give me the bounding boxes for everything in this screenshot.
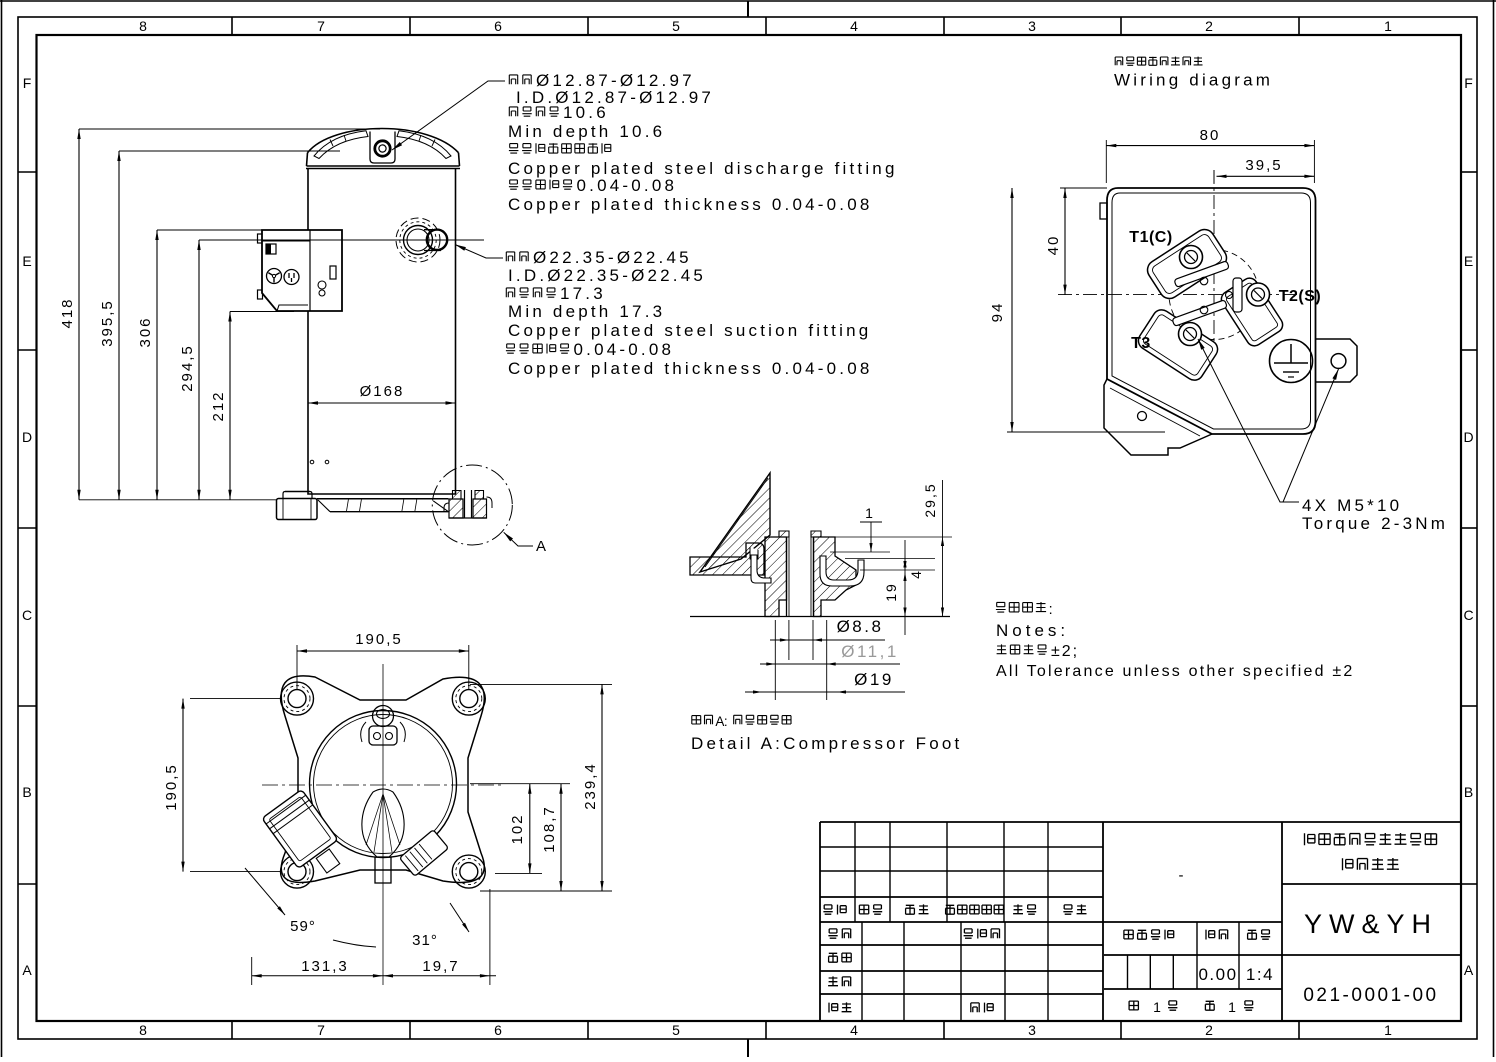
svg-text:4: 4	[850, 1022, 858, 1038]
svg-text:I.D.Ø22.35-Ø22.45: I.D.Ø22.35-Ø22.45	[508, 266, 706, 285]
svg-text:F: F	[1464, 75, 1473, 91]
svg-text:239,4: 239,4	[582, 762, 599, 810]
svg-text:C: C	[22, 607, 32, 623]
svg-text:C: C	[1463, 607, 1473, 623]
svg-text:5: 5	[672, 18, 680, 34]
svg-text:Ø22.35-Ø22.45: Ø22.35-Ø22.45	[533, 248, 692, 267]
svg-text:YW&YH: YW&YH	[1304, 909, 1438, 939]
svg-text:B: B	[1464, 784, 1473, 800]
svg-text:3: 3	[1028, 18, 1036, 34]
svg-text:B: B	[22, 784, 31, 800]
svg-text:17.3: 17.3	[560, 284, 606, 303]
svg-text:Ø8.8: Ø8.8	[837, 617, 884, 636]
svg-text:I.D.Ø12.87-Ø12.97: I.D.Ø12.87-Ø12.97	[516, 88, 714, 107]
svg-text:1: 1	[1228, 999, 1238, 1015]
svg-text:A: A	[536, 538, 546, 555]
svg-text:Ø19: Ø19	[854, 670, 894, 689]
svg-text:1: 1	[1384, 1022, 1392, 1038]
svg-text:Ø168: Ø168	[360, 383, 405, 400]
svg-text:A: A	[22, 962, 32, 978]
svg-text:102: 102	[509, 813, 526, 844]
svg-text:T3: T3	[1131, 335, 1151, 352]
svg-text::: :	[724, 714, 728, 729]
svg-text:190,5: 190,5	[355, 631, 403, 648]
svg-text:212: 212	[210, 390, 227, 421]
svg-text:39,5: 39,5	[1245, 157, 1282, 174]
svg-text:1: 1	[865, 505, 875, 521]
svg-text:1:4: 1:4	[1246, 965, 1274, 984]
svg-text:-: -	[1179, 867, 1186, 884]
svg-text:1: 1	[1384, 18, 1392, 34]
svg-text:6: 6	[494, 1022, 502, 1038]
svg-text:306: 306	[137, 316, 154, 347]
svg-text:F: F	[23, 75, 32, 91]
svg-text:Wiring diagram: Wiring diagram	[1114, 71, 1273, 90]
svg-text:T2(S): T2(S)	[1279, 288, 1322, 305]
svg-text:4X M5*10: 4X M5*10	[1302, 496, 1402, 515]
svg-text:E: E	[1464, 253, 1473, 269]
svg-text:108,7: 108,7	[541, 805, 558, 853]
svg-text:2: 2	[1205, 1022, 1213, 1038]
svg-text:0.04-0.08: 0.04-0.08	[574, 340, 675, 359]
svg-text:59°: 59°	[290, 918, 316, 935]
svg-text:1: 1	[1153, 999, 1163, 1015]
svg-text:4: 4	[908, 569, 924, 579]
svg-text:Detail A:Compressor Foot: Detail A:Compressor Foot	[691, 734, 962, 753]
svg-text:5: 5	[672, 1022, 680, 1038]
svg-text:A: A	[1464, 962, 1474, 978]
svg-text:D: D	[22, 429, 32, 445]
svg-text:E: E	[22, 253, 31, 269]
svg-text:Ø11,1: Ø11,1	[841, 642, 899, 661]
svg-text:Copper plated steel discharge: Copper plated steel discharge fitting	[508, 159, 898, 178]
svg-text:8: 8	[139, 18, 147, 34]
svg-text:D: D	[1463, 429, 1473, 445]
svg-text:29,5: 29,5	[922, 482, 938, 517]
svg-text:0.04-0.08: 0.04-0.08	[577, 176, 678, 195]
svg-text:4: 4	[850, 18, 858, 34]
svg-text:6: 6	[494, 18, 502, 34]
svg-text:Notes:: Notes:	[996, 621, 1069, 640]
svg-text:131,3: 131,3	[301, 958, 349, 975]
svg-text:All Tolerance unless other spe: All Tolerance unless other specified ±2	[996, 663, 1354, 680]
svg-text:19,7: 19,7	[422, 958, 459, 975]
svg-text:31°: 31°	[412, 932, 438, 949]
svg-text:±2;: ±2;	[1051, 643, 1079, 660]
svg-text:Copper plated thickness 0.04-0: Copper plated thickness 0.04-0.08	[508, 359, 873, 378]
svg-text::: :	[1049, 602, 1053, 618]
svg-text:10.6: 10.6	[563, 103, 609, 122]
svg-text:19: 19	[883, 582, 899, 602]
svg-text:0.00: 0.00	[1198, 965, 1237, 984]
svg-text:8: 8	[139, 1022, 147, 1038]
svg-text:7: 7	[317, 1022, 325, 1038]
svg-text:Torque 2-3Nm: Torque 2-3Nm	[1302, 514, 1448, 533]
svg-text:2: 2	[1205, 18, 1213, 34]
svg-text:3: 3	[1028, 1022, 1036, 1038]
svg-text:021-0001-00: 021-0001-00	[1303, 985, 1438, 1006]
svg-text:T1(C): T1(C)	[1129, 229, 1172, 246]
svg-text:Copper plated thickness 0.04-0: Copper plated thickness 0.04-0.08	[508, 195, 873, 214]
svg-text:190,5: 190,5	[163, 763, 180, 811]
svg-text:Min depth 10.6: Min depth 10.6	[508, 122, 665, 141]
svg-text:94: 94	[989, 302, 1006, 323]
svg-text:40: 40	[1045, 235, 1062, 256]
svg-text:7: 7	[317, 18, 325, 34]
svg-text:418: 418	[59, 297, 76, 328]
svg-text:Copper plated steel suction fi: Copper plated steel suction fitting	[508, 321, 871, 340]
svg-text:80: 80	[1200, 127, 1221, 144]
svg-text:Min depth 17.3: Min depth 17.3	[508, 302, 665, 321]
svg-text:395,5: 395,5	[99, 299, 116, 347]
svg-text:294,5: 294,5	[179, 344, 196, 392]
